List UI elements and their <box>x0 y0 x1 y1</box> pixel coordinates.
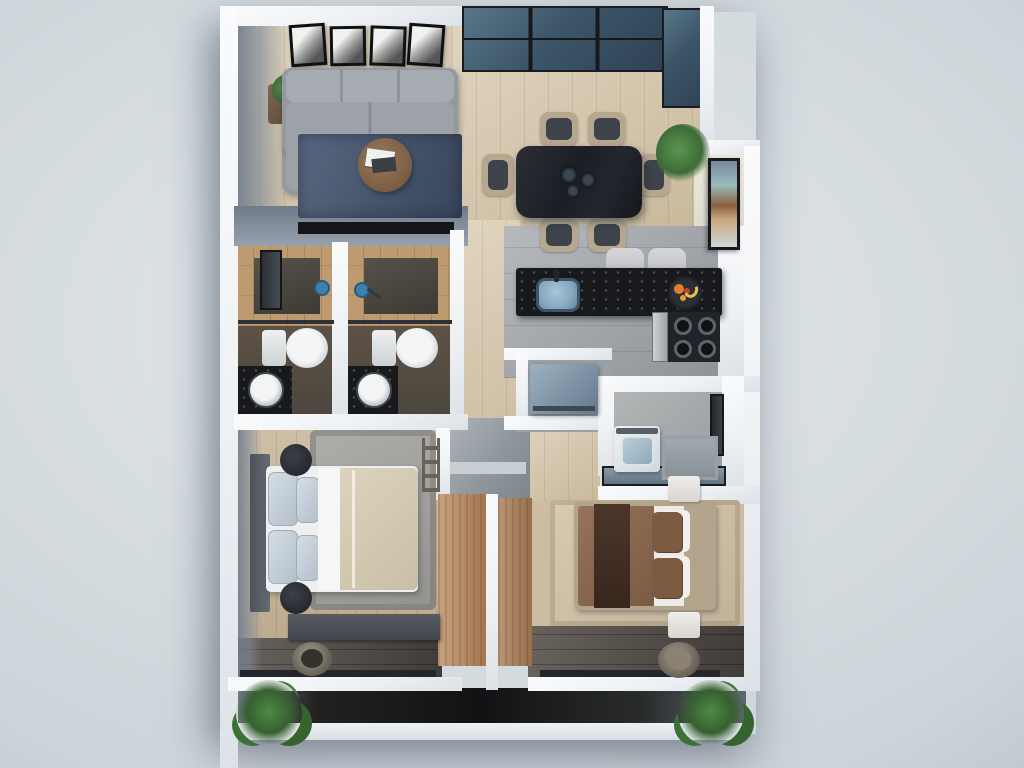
kitchen-sink <box>536 278 580 312</box>
bedroom2-wardrobe-wood <box>498 498 532 666</box>
washing-machine-panel <box>616 428 658 434</box>
wall-picture-3 <box>369 25 406 66</box>
wall-picture-2 <box>330 26 367 67</box>
dining-corner-window <box>662 8 704 108</box>
bathroom2-shower-screen <box>348 320 452 324</box>
bedroom-divider-wall <box>486 494 498 690</box>
bedroom2-nightstand-top <box>668 476 700 502</box>
stove-burner-4 <box>698 340 716 358</box>
dining-top-window <box>462 6 668 72</box>
balcony-front-wall <box>234 723 746 740</box>
master-nightstand-bottom <box>280 582 312 614</box>
refrigerator-vent <box>533 406 595 411</box>
bathroom2-toilet-tank <box>372 330 396 366</box>
fruit-oranges <box>674 284 684 294</box>
wall-art <box>708 158 740 250</box>
bathroom1-shower-screen <box>238 320 334 324</box>
bathroom1-basin <box>248 372 284 408</box>
master-sheet-fold <box>318 468 342 590</box>
oven-front <box>652 312 668 362</box>
sink-faucet <box>554 270 559 282</box>
master-duvet-crease <box>352 470 355 588</box>
master-pillow-2 <box>296 477 320 523</box>
dining-corner-plant <box>656 124 710 182</box>
wall-picture-4 <box>407 23 446 67</box>
balcony-floor <box>234 688 746 724</box>
bedroom2-pillow-brown-1 <box>652 512 682 552</box>
master-dresser <box>288 614 440 640</box>
master-nightstand-top <box>280 444 312 476</box>
outer-wall-top <box>220 6 466 26</box>
stove-burner-2 <box>698 317 716 335</box>
table-centerpiece-plate-1 <box>560 166 578 184</box>
bathroom-right-wall <box>450 230 464 422</box>
balcony-plant-left <box>236 680 302 746</box>
table-centerpiece-plate-2 <box>580 172 596 188</box>
bathroom2-basin <box>356 372 392 408</box>
master-wardrobe-wood <box>438 494 486 666</box>
master-pillow-3 <box>268 530 298 584</box>
dining-chair-bottom-2 <box>588 218 626 252</box>
bathroom2-shower-floor <box>364 258 438 314</box>
dining-chair-bottom-1 <box>540 218 578 252</box>
bedroom2-nightstand-bottom <box>668 612 700 638</box>
master-pillow-4 <box>296 535 320 581</box>
floor-plan-render <box>0 0 1024 768</box>
outer-wall-left <box>220 6 238 768</box>
washing-machine-lid <box>621 436 654 466</box>
vestibule-step <box>450 462 526 474</box>
bedroom2-throw-blanket <box>594 504 630 608</box>
master-planter-inner <box>301 649 323 668</box>
bathroom1-toilet-tank <box>262 330 286 366</box>
bathroom1-toilet-bowl <box>286 328 328 368</box>
dining-chair-top-1 <box>540 112 578 146</box>
stove-burner-3 <box>674 340 692 358</box>
balcony-plant-right <box>678 680 744 746</box>
wall-art-canvas <box>711 161 737 247</box>
dining-chair-left <box>482 154 514 196</box>
table-centerpiece-plate-3 <box>566 184 580 198</box>
bathroom2-toilet-bowl <box>396 328 438 368</box>
stove-burner-1 <box>674 317 692 335</box>
laundry-left-wall <box>598 376 614 476</box>
coffee-table-book-dark <box>371 157 396 173</box>
laundry-shelf-unit <box>662 436 718 480</box>
master-pillow-1 <box>268 472 298 526</box>
tv-screen <box>298 222 454 234</box>
bathroom1-window <box>260 250 282 310</box>
bathroom-bottom-wall <box>234 414 468 430</box>
dining-chair-top-2 <box>588 112 626 146</box>
bedroom2-pillow-brown-2 <box>652 558 682 598</box>
dining-table <box>516 146 642 218</box>
blanket-ladder <box>422 438 440 492</box>
outer-wall-right <box>744 146 760 691</box>
bathroom1-shower-head <box>316 282 328 294</box>
fridge-niche-bottom-wall <box>504 416 612 430</box>
bedroom2-planter-inner <box>668 650 691 670</box>
bathroom-divider-wall <box>332 242 348 418</box>
wall-picture-1 <box>289 23 328 67</box>
sofa-back-cushions <box>286 70 454 102</box>
